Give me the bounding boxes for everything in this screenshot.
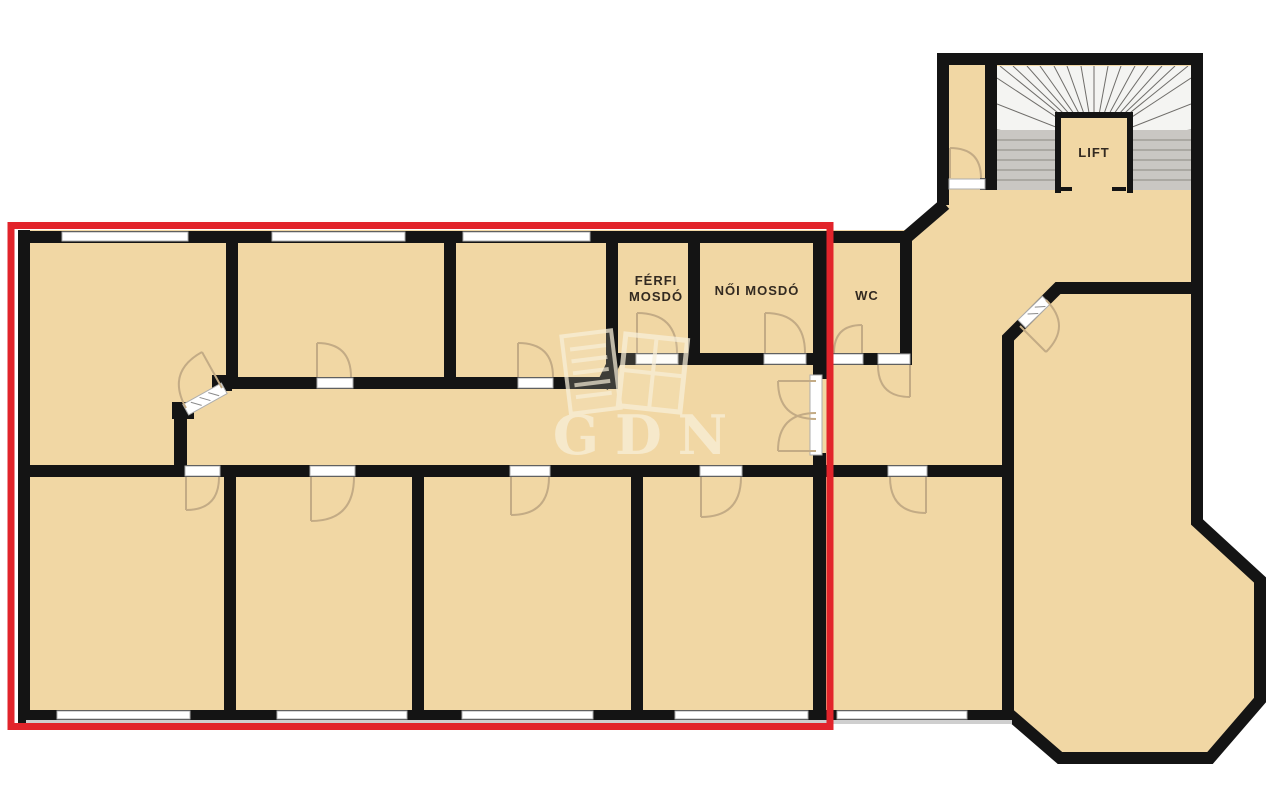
wc-label: WC (855, 288, 879, 303)
stair-treads-right (1130, 130, 1191, 190)
noi-mosdo-label: NŐI MOSDÓ (715, 283, 800, 298)
gdn-watermark-text: GDN (553, 403, 743, 467)
floor-plan-image: FÉRFI MOSDÓ NŐI MOSDÓ WC LIFT GDN (0, 0, 1280, 812)
stair-treads-left (997, 130, 1058, 190)
lift-label: LIFT (1078, 145, 1109, 160)
double-door-partition (810, 375, 822, 455)
ferfi-mosdo-label-line2: MOSDÓ (629, 289, 683, 304)
bay-room-outline (1008, 288, 1260, 758)
floor-plan-page: FÉRFI MOSDÓ NŐI MOSDÓ WC LIFT GDN (0, 0, 1280, 812)
ferfi-mosdo-label-line1: FÉRFI (635, 273, 678, 288)
gdn-watermark-logo (561, 330, 687, 414)
